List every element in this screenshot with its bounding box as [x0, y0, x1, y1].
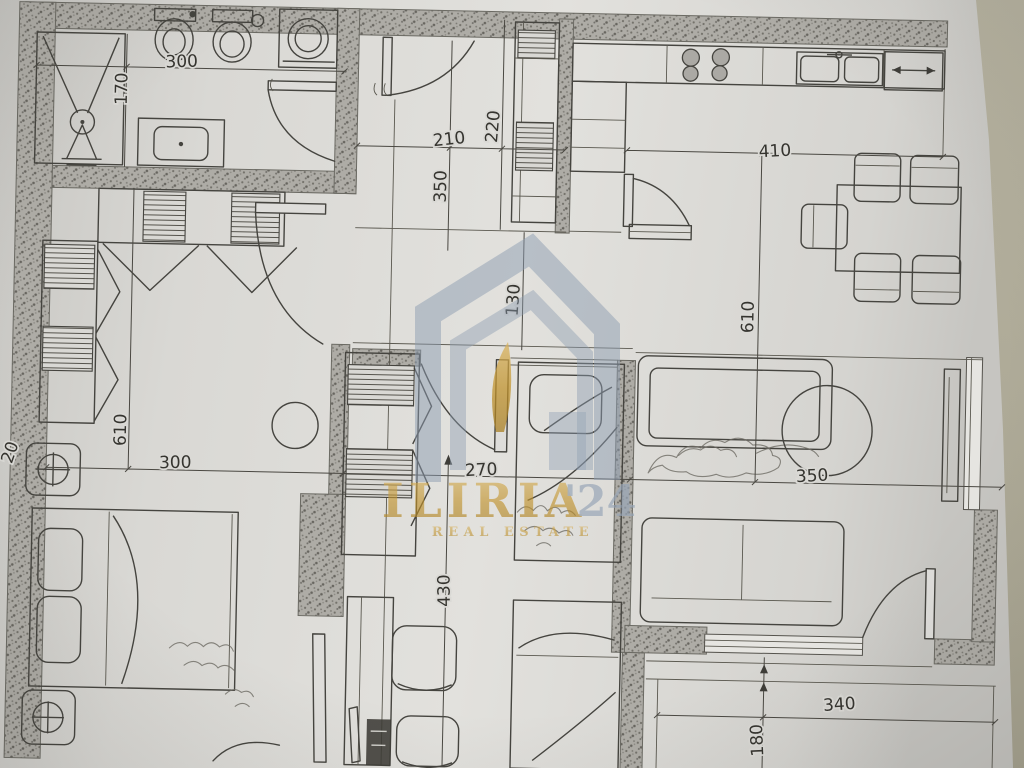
floor-plan-svg: 300 170 210 220 350 410 130 610 610 300 …	[0, 0, 1024, 768]
photo-vignette	[0, 0, 1024, 768]
floor-plan-photo: 300 170 210 220 350 410 130 610 610 300 …	[0, 0, 1024, 768]
